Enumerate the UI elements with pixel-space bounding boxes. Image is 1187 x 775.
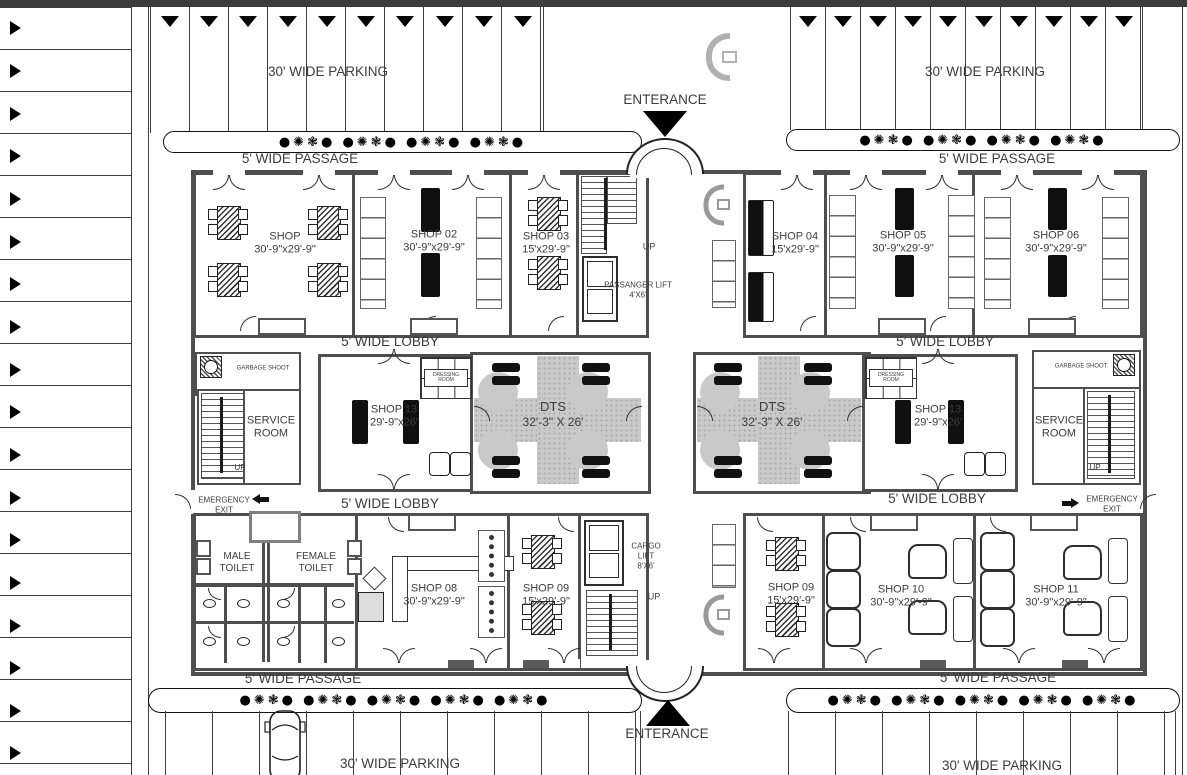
passage-label-bottom-left: 5' WIDE PASSAGE bbox=[245, 671, 361, 687]
room-label-shop01: SHOP 30'-9"x29'-9" bbox=[254, 231, 316, 258]
parking-arrow-icon bbox=[10, 405, 21, 419]
parking-arrow-icon bbox=[10, 320, 21, 334]
display-counter bbox=[895, 255, 914, 297]
room-name: SHOP 13 bbox=[370, 404, 418, 417]
up-label: UP bbox=[643, 242, 656, 253]
parking-arrow-icon bbox=[200, 16, 218, 27]
room-label-shop03: SHOP 03 15'x29'-9" bbox=[522, 231, 570, 258]
garbage-shoot-label: GARBAGE SHOOT bbox=[1055, 363, 1108, 370]
parking-arrow-icon bbox=[10, 704, 21, 718]
parking-arrow-icon bbox=[10, 363, 21, 377]
parking-arrow-icon bbox=[10, 277, 21, 291]
parking-arrow-icon bbox=[161, 16, 179, 27]
parking-arrow-icon bbox=[10, 746, 21, 760]
storefront-window bbox=[870, 514, 918, 531]
planter-top-right: ●✺❃● ●✺❃● ●✺❃● ●✺❃● bbox=[786, 129, 1180, 151]
up-label: UP bbox=[648, 592, 661, 603]
parking-arrow-icon bbox=[436, 16, 454, 27]
room-dims: 32'-3" X 26' bbox=[523, 415, 584, 430]
shelf-rack bbox=[984, 197, 1011, 309]
table-with-chairs bbox=[766, 536, 806, 570]
display-counter bbox=[1048, 255, 1067, 297]
parking-arrow-icon bbox=[10, 533, 21, 547]
table-with-chairs bbox=[208, 205, 248, 239]
tree-icons: ●✺❃● ●✺❃● ●✺❃● ●✺❃● bbox=[279, 136, 526, 149]
shelf-rack bbox=[1102, 197, 1129, 309]
parking-arrows-top-right bbox=[790, 7, 1142, 27]
cargo-lift-label: CARGO LIFT 8'X6' bbox=[623, 541, 669, 570]
parking-arrow-icon bbox=[10, 235, 21, 249]
corridor-shelf bbox=[712, 524, 736, 588]
lobby-label-upper-right: 5' WIDE LOBBY bbox=[896, 334, 994, 350]
parking-arrow-icon bbox=[1115, 16, 1133, 27]
room-name: SHOP 02 bbox=[403, 229, 465, 242]
parking-arrow-icon bbox=[10, 619, 21, 633]
table-with-chairs bbox=[308, 262, 348, 296]
display-counter bbox=[1048, 188, 1067, 230]
garbage-chute-hatch bbox=[1113, 354, 1135, 376]
parking-arrow-icon bbox=[1045, 16, 1063, 27]
parking-arrow-icon bbox=[475, 16, 493, 27]
table-with-chairs bbox=[528, 255, 568, 289]
dressing-room-label: DRESSING ROOM bbox=[869, 369, 913, 387]
parking-arrow-icon bbox=[939, 16, 957, 27]
room-label-shop06: SHOP 06 30'-9"x29'-9" bbox=[1025, 230, 1087, 257]
room-name: SHOP 06 bbox=[1025, 230, 1087, 243]
curved-desk-icon bbox=[698, 182, 732, 228]
section-marker-icon bbox=[700, 30, 740, 82]
emergency-exit-label: EMERGENCY EXIT bbox=[1081, 494, 1143, 514]
side-table bbox=[953, 538, 973, 584]
planter-top-left: ●✺❃● ●✺❃● ●✺❃● ●✺❃● bbox=[163, 131, 642, 153]
display-counter bbox=[421, 253, 440, 297]
room-label-dts-right: DTS 32'-3" X 26' bbox=[742, 399, 803, 429]
emergency-exit-arrow-icon bbox=[1062, 498, 1079, 508]
lift-size: 8'X6' bbox=[623, 561, 669, 571]
parking-arrow-icon bbox=[279, 16, 297, 27]
lift-name: CARGO LIFT bbox=[623, 541, 669, 561]
waiting-chair bbox=[964, 452, 985, 476]
table-with-chairs bbox=[208, 262, 248, 296]
parking-arrow-icon bbox=[799, 16, 817, 27]
parking-label-top-left: 30' WIDE PARKING bbox=[268, 64, 388, 80]
passenger-lift-label: PASSANGER LIFT 4'X6' bbox=[602, 280, 674, 300]
dressing-room-label: DRESSING ROOM bbox=[424, 369, 468, 387]
parking-arrow-icon bbox=[10, 107, 21, 121]
table-with-chairs bbox=[522, 534, 562, 568]
parking-arrows-top-left bbox=[150, 7, 543, 27]
room-dims: 32'-3" X 26' bbox=[742, 415, 803, 430]
tree-icons: ●✺❃● ●✺❃● ●✺❃● ●✺❃● ●✺❃● bbox=[240, 694, 551, 707]
lobby-label-lower-right: 5' WIDE LOBBY bbox=[888, 491, 986, 507]
garbage-shoot-label: GARBAGE SHOOT bbox=[237, 365, 290, 372]
room-label-shop05: SHOP 05 30'-9"x29'-9" bbox=[872, 230, 934, 257]
room-label-shop09-left: SHOP 09 15'x29'-9" bbox=[522, 583, 570, 610]
storefront-window bbox=[878, 318, 926, 335]
storefront-window bbox=[258, 318, 306, 335]
service-room-label: SERVICE ROOM bbox=[242, 415, 300, 442]
parking-arrow-icon bbox=[514, 16, 532, 27]
parking-arrow-icon bbox=[357, 16, 375, 27]
parking-arrow-icon bbox=[1080, 16, 1098, 27]
room-dims: 15'x29'-9" bbox=[522, 244, 570, 257]
parking-arrow-icon bbox=[10, 448, 21, 462]
room-dims: 29'-9"x26' bbox=[914, 417, 962, 430]
sofa bbox=[826, 532, 861, 571]
window-chrome-bar bbox=[0, 0, 1187, 7]
room-label-dts-left: DTS 32'-3" X 26' bbox=[523, 399, 584, 429]
tree-icons: ●✺❃● ●✺❃● ●✺❃● ●✺❃● ●✺❃● bbox=[828, 694, 1139, 707]
room-name: SHOP 11 bbox=[1025, 584, 1087, 597]
waiting-chair bbox=[429, 452, 450, 476]
lobby-label-lower-left: 5' WIDE LOBBY bbox=[341, 496, 439, 512]
up-label: UP bbox=[1089, 463, 1100, 473]
floor-plan: 30' WIDE PARKING 30' WIDE PARKING ●✺❃● ●… bbox=[0, 0, 1187, 775]
parking-arrow-icon bbox=[10, 661, 21, 675]
parking-label-bottom-left: 30' WIDE PARKING bbox=[340, 756, 460, 772]
side-table bbox=[953, 596, 973, 642]
room-label-shop13-right: SHOP 13 29'-9"x26' bbox=[914, 404, 962, 431]
parking-arrow-icon bbox=[975, 16, 993, 27]
sofa bbox=[980, 570, 1015, 609]
cargo-lift bbox=[584, 520, 624, 586]
parking-arrow-icon bbox=[869, 16, 887, 27]
room-name: DTS bbox=[742, 399, 803, 415]
shelf-rack bbox=[476, 197, 502, 309]
shelf-rack bbox=[948, 195, 975, 309]
curved-desk-icon bbox=[698, 592, 732, 638]
room-name: SHOP bbox=[254, 231, 316, 244]
entrance-label-top: ENTERANCE bbox=[623, 92, 706, 108]
parking-arrow-icon bbox=[10, 192, 21, 206]
room-label-shop02: SHOP 02 30'-9"x29'-9" bbox=[403, 229, 465, 256]
room-dims: 15'x29'-9" bbox=[522, 596, 570, 609]
lift-size: 4'X6' bbox=[602, 290, 674, 300]
staircase bbox=[586, 590, 638, 656]
passage-label-top-right: 5' WIDE PASSAGE bbox=[939, 151, 1055, 167]
tree-icons: ●✺❃● ●✺❃● ●✺❃● ●✺❃● bbox=[859, 134, 1106, 147]
staircase bbox=[607, 176, 637, 224]
service-room-label: SERVICE ROOM bbox=[1030, 415, 1088, 442]
up-label: UP bbox=[234, 463, 245, 473]
room-dims: 30'-9"x29'-9" bbox=[403, 242, 465, 255]
sofa bbox=[826, 608, 861, 647]
shelf-rack bbox=[360, 197, 386, 309]
parking-arrow-icon bbox=[1010, 16, 1028, 27]
display-counter bbox=[421, 188, 440, 232]
entrance-arrow-down-icon bbox=[643, 111, 687, 137]
sofa bbox=[980, 532, 1015, 571]
emergency-exit-label: EMERGENCY EXIT bbox=[193, 495, 255, 515]
emergency-exit-arrow-icon bbox=[252, 494, 269, 504]
room-label-shop10: SHOP 10 30'-9"x29'-9" bbox=[870, 584, 932, 611]
room-name: SHOP 10 bbox=[870, 584, 932, 597]
storefront-window bbox=[1028, 318, 1076, 335]
room-label-shop11: SHOP 11 30'-9"x29'-9" bbox=[1025, 584, 1087, 611]
room-label-shop08: SHOP 08 30'-9"x29'-9" bbox=[403, 583, 465, 610]
room-name: DTS bbox=[523, 399, 584, 415]
sofa bbox=[826, 570, 861, 609]
passage-label-bottom-right: 5' WIDE PASSAGE bbox=[940, 670, 1056, 686]
clothes-rack bbox=[478, 586, 505, 638]
room-dims: 30'-9"x29'-9" bbox=[870, 597, 932, 610]
room-dims: 30'-9"x29'-9" bbox=[1025, 243, 1087, 256]
display-counter bbox=[352, 400, 368, 444]
room-name: SHOP 09 bbox=[767, 582, 815, 595]
waiting-chair bbox=[450, 452, 471, 476]
side-table bbox=[1108, 538, 1128, 584]
passage-label-top-left: 5' WIDE PASSAGE bbox=[242, 151, 358, 167]
room-dims: 15'x29'-9" bbox=[771, 244, 819, 257]
female-toilet-label: FEMALE TOILET bbox=[288, 551, 344, 575]
parking-arrow-icon bbox=[318, 16, 336, 27]
parking-arrow-icon bbox=[10, 149, 21, 163]
room-dims: 30'-9"x29'-9" bbox=[254, 244, 316, 257]
parking-arrow-icon bbox=[10, 576, 21, 590]
display-counter bbox=[895, 188, 914, 230]
storefront-window bbox=[1030, 514, 1078, 531]
parking-arrows-left bbox=[0, 7, 50, 775]
toilet-vestibule bbox=[249, 511, 301, 543]
storefront-window bbox=[410, 318, 458, 335]
male-toilet-label: MALE TOILET bbox=[212, 551, 262, 575]
parking-label-bottom-right: 30' WIDE PARKING bbox=[942, 758, 1062, 774]
side-table bbox=[1108, 596, 1128, 642]
waiting-chair bbox=[985, 452, 1006, 476]
shelf-rack bbox=[829, 195, 856, 309]
room-name: SHOP 13 bbox=[914, 404, 962, 417]
parking-arrow-icon bbox=[239, 16, 257, 27]
room-name: SHOP 08 bbox=[403, 583, 465, 596]
parking-arrow-icon bbox=[10, 491, 21, 505]
room-label-shop04: SHOP 04 15'x29'-9" bbox=[771, 231, 819, 258]
storefront-window bbox=[408, 514, 456, 531]
armchair bbox=[908, 544, 947, 579]
clothes-rack bbox=[478, 530, 505, 582]
room-name: SHOP 03 bbox=[522, 231, 570, 244]
room-name: SHOP 04 bbox=[771, 231, 819, 244]
copier bbox=[358, 592, 384, 622]
planter-bottom-left: ●✺❃● ●✺❃● ●✺❃● ●✺❃● ●✺❃● bbox=[148, 688, 642, 713]
room-label-shop09-right: SHOP 09 15'x29'-9" bbox=[767, 582, 815, 609]
lobby-label-upper-left: 5' WIDE LOBBY bbox=[341, 334, 439, 350]
room-dims: 30'-9"x29'-9" bbox=[1025, 597, 1087, 610]
armchair bbox=[1063, 545, 1102, 580]
parking-arrow-icon bbox=[834, 16, 852, 27]
sofa bbox=[980, 608, 1015, 647]
room-label-shop13-left: SHOP 13 29'-9"x26' bbox=[370, 404, 418, 431]
display-counter bbox=[895, 400, 911, 444]
page-border-line bbox=[1182, 7, 1183, 775]
table-with-chairs bbox=[528, 196, 568, 230]
parking-arrow-icon bbox=[10, 21, 21, 35]
garbage-chute-hatch bbox=[200, 356, 222, 378]
display-counter bbox=[748, 272, 774, 322]
parking-arrow-icon bbox=[904, 16, 922, 27]
road-edge-line bbox=[148, 7, 149, 775]
lift-name: PASSANGER LIFT bbox=[602, 280, 674, 290]
parking-arrow-icon bbox=[10, 64, 21, 78]
room-dims: 30'-9"x29'-9" bbox=[872, 243, 934, 256]
parking-arrow-icon bbox=[396, 16, 414, 27]
corridor-shelf bbox=[712, 240, 736, 308]
room-name: SHOP 05 bbox=[872, 230, 934, 243]
entrance-arrow-up-icon bbox=[646, 700, 690, 726]
room-dims: 29'-9"x26' bbox=[370, 417, 418, 430]
car-icon bbox=[262, 708, 308, 775]
parking-label-top-right: 30' WIDE PARKING bbox=[925, 64, 1045, 80]
room-name: SHOP 09 bbox=[522, 583, 570, 596]
room-dims: 15'x29'-9" bbox=[767, 595, 815, 608]
room-dims: 30'-9"x29'-9" bbox=[403, 596, 465, 609]
planter-bottom-right: ●✺❃● ●✺❃● ●✺❃● ●✺❃● ●✺❃● bbox=[786, 688, 1180, 713]
